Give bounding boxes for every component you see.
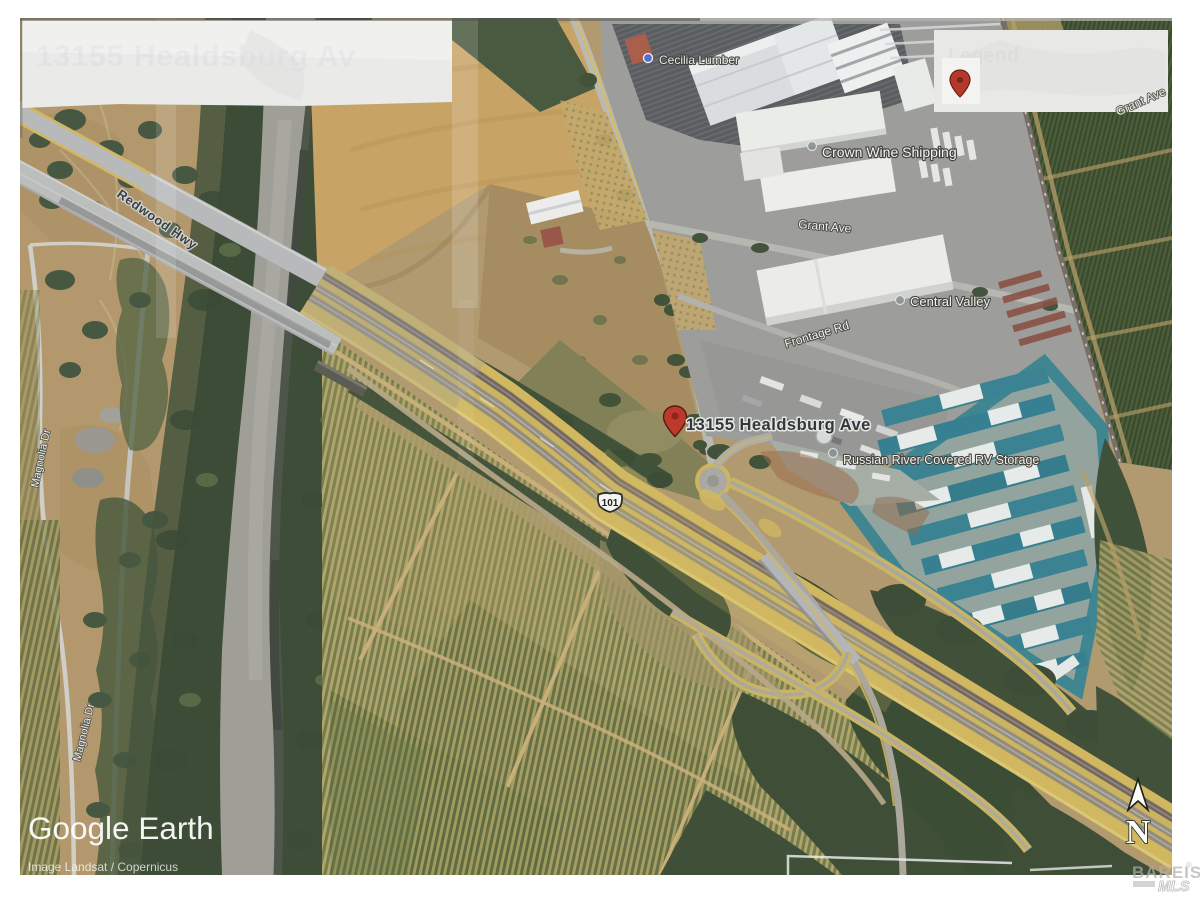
svg-text:13155 Healdsburg Av: 13155 Healdsburg Av (36, 40, 356, 73)
svg-text:Russian River Covered RV Stora: Russian River Covered RV Storage (843, 453, 1039, 467)
svg-text:®: ® (1186, 861, 1192, 870)
svg-text:MLS: MLS (1158, 878, 1190, 895)
svg-text:N: N (1126, 814, 1151, 851)
svg-text:Image Landsat / Copernicus: Image Landsat / Copernicus (28, 860, 178, 874)
svg-text:101: 101 (602, 498, 619, 509)
svg-text:Central Valley: Central Valley (910, 294, 990, 309)
svg-text:Cecilia Lumber: Cecilia Lumber (659, 53, 739, 67)
svg-text:13155 Healdsburg Ave: 13155 Healdsburg Ave (686, 416, 871, 434)
svg-text:Crown Wine Shipping: Crown Wine Shipping (822, 144, 957, 160)
svg-text:Google Earth: Google Earth (28, 810, 214, 846)
